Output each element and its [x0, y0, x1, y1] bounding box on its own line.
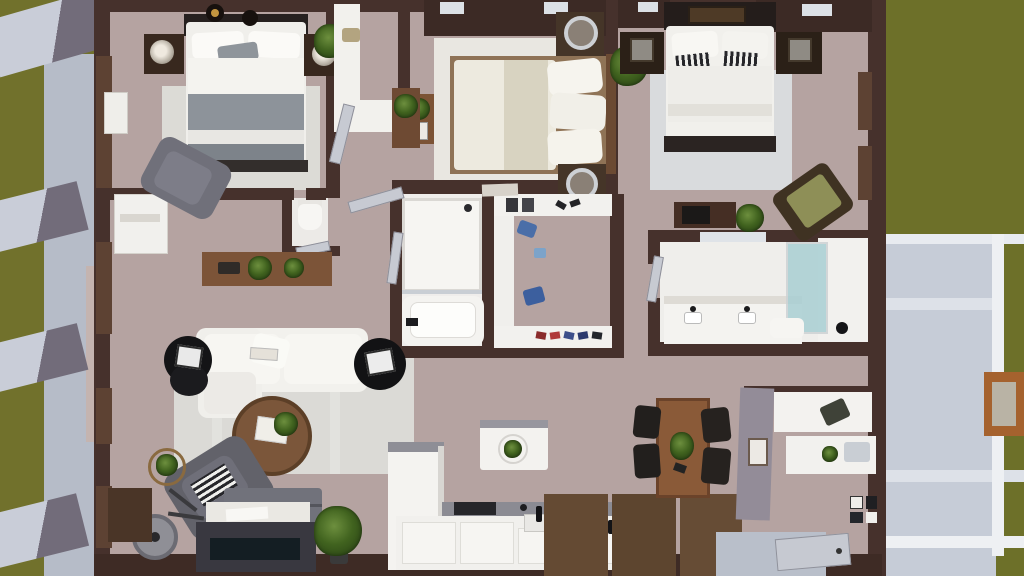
- wall-art-4: [866, 512, 877, 523]
- dining-chair-right-1: [700, 407, 731, 444]
- wic-towel: [534, 248, 546, 258]
- wall-closet-right-2: [610, 194, 624, 358]
- pergola-inner: [992, 382, 1016, 426]
- bed3-footboard: [664, 136, 776, 152]
- vanity-faucet-2: [744, 306, 750, 312]
- louver-box-bottom-left: [108, 488, 152, 542]
- console-bedroom3-tv: [682, 206, 710, 224]
- kitchen-faucet: [536, 506, 542, 522]
- wall-closet-right: [398, 0, 410, 94]
- wall-art-3: [850, 512, 863, 523]
- vanity-faucet-1: [690, 306, 696, 312]
- bed3-headboard-decor: [688, 6, 746, 24]
- deck: [884, 240, 996, 576]
- shower: [402, 198, 482, 292]
- wall-shelf-bedroom1: [104, 92, 128, 134]
- bed1-fold: [188, 130, 304, 144]
- bed1-duvet: [188, 58, 304, 96]
- kitchen-cabinet-1: [402, 522, 456, 564]
- deck-beam-1: [884, 298, 992, 310]
- wall-bathroom2-left-b: [648, 298, 660, 356]
- shower-glass-line: [402, 290, 482, 294]
- entry-door-handle: [836, 548, 842, 554]
- side-table-black-left-2: [170, 364, 208, 396]
- wall-art-1: [850, 496, 863, 509]
- wall-wc-left: [282, 196, 292, 252]
- louver-window-r1: [858, 72, 872, 130]
- closet1-basket: [342, 28, 360, 42]
- wic-shelf-left: [494, 216, 514, 330]
- bathtub-inner: [410, 302, 476, 338]
- wall-bedroom1-bottom-2: [306, 188, 326, 200]
- bathroom2-window: [700, 232, 766, 242]
- wic-shoe-2: [550, 331, 561, 339]
- ceiling-light-1-dot: [211, 9, 219, 17]
- bed3-fold: [668, 104, 772, 116]
- bed2-pillow-2: [549, 92, 607, 132]
- wc-toilet: [298, 204, 322, 230]
- wall-art-2: [866, 496, 877, 509]
- wic-shoe-1: [535, 331, 546, 340]
- louver-window-l3: [96, 388, 112, 444]
- wic-shoe-5: [592, 331, 603, 339]
- dining-chair-left-2: [633, 443, 661, 479]
- window-top-4: [802, 4, 832, 16]
- wall-bathroom2-bottom: [650, 342, 872, 356]
- bed1-blanket: [188, 94, 304, 132]
- kitchen-tall-cabinet-cap: [388, 442, 444, 452]
- heater-bathroom2: [836, 322, 848, 334]
- bed2-pillow-1: [546, 57, 603, 96]
- lamp-3l: [630, 38, 654, 62]
- wic-hanging-1: [506, 198, 518, 212]
- sofa-tray: [250, 347, 279, 361]
- lamp-3r: [788, 38, 812, 62]
- kitchen-cooktop: [454, 502, 496, 515]
- louver-window-r2: [858, 146, 872, 200]
- utility-sink: [844, 442, 870, 462]
- floorplan-render: [0, 0, 1024, 576]
- bed2-knit-blanket: [504, 60, 548, 170]
- mirror-lamp-2t: [564, 16, 598, 50]
- scene: [0, 0, 1024, 576]
- porch-step-1: [544, 494, 608, 576]
- utility-wall-sign: [748, 438, 768, 466]
- frame-on-table-left: [175, 344, 204, 369]
- kitchen-island-rim: [480, 420, 548, 428]
- kitchen-faucet-dot-1: [520, 504, 527, 511]
- frame-on-table-right: [364, 348, 396, 376]
- dining-chair-right-2: [700, 447, 731, 485]
- closet-living-shelf: [120, 214, 160, 222]
- deck-railing-bottom: [884, 536, 1024, 548]
- wire-side-table-plant: [156, 454, 178, 476]
- window-top-3: [638, 2, 658, 12]
- porch-step-2: [612, 494, 676, 576]
- window-top-1: [440, 2, 464, 14]
- ceiling-light-2: [242, 10, 258, 26]
- closet1-shelf-vertical: [334, 4, 360, 102]
- bathtub-faucet: [406, 318, 418, 326]
- vanity-sink-1: [684, 312, 702, 324]
- sofa-cushion-2: [284, 334, 362, 384]
- vanity-edge: [664, 296, 802, 304]
- closet-living-builtin: [114, 194, 168, 254]
- kitchen-cabinet-2: [460, 522, 514, 564]
- dining-chair-left-1: [632, 405, 661, 440]
- vanity-sink-2: [738, 312, 756, 324]
- toilet-bathroom2: [770, 318, 804, 338]
- shower-head: [464, 204, 472, 212]
- lamp-1l: [150, 40, 174, 64]
- wic-hanging-2: [522, 198, 534, 212]
- tv-screen: [210, 538, 300, 560]
- sideboard-books: [218, 262, 240, 274]
- hall-up-mat: [482, 183, 518, 196]
- louver-window-l2: [96, 242, 112, 334]
- bed2-pillow-3: [547, 128, 603, 166]
